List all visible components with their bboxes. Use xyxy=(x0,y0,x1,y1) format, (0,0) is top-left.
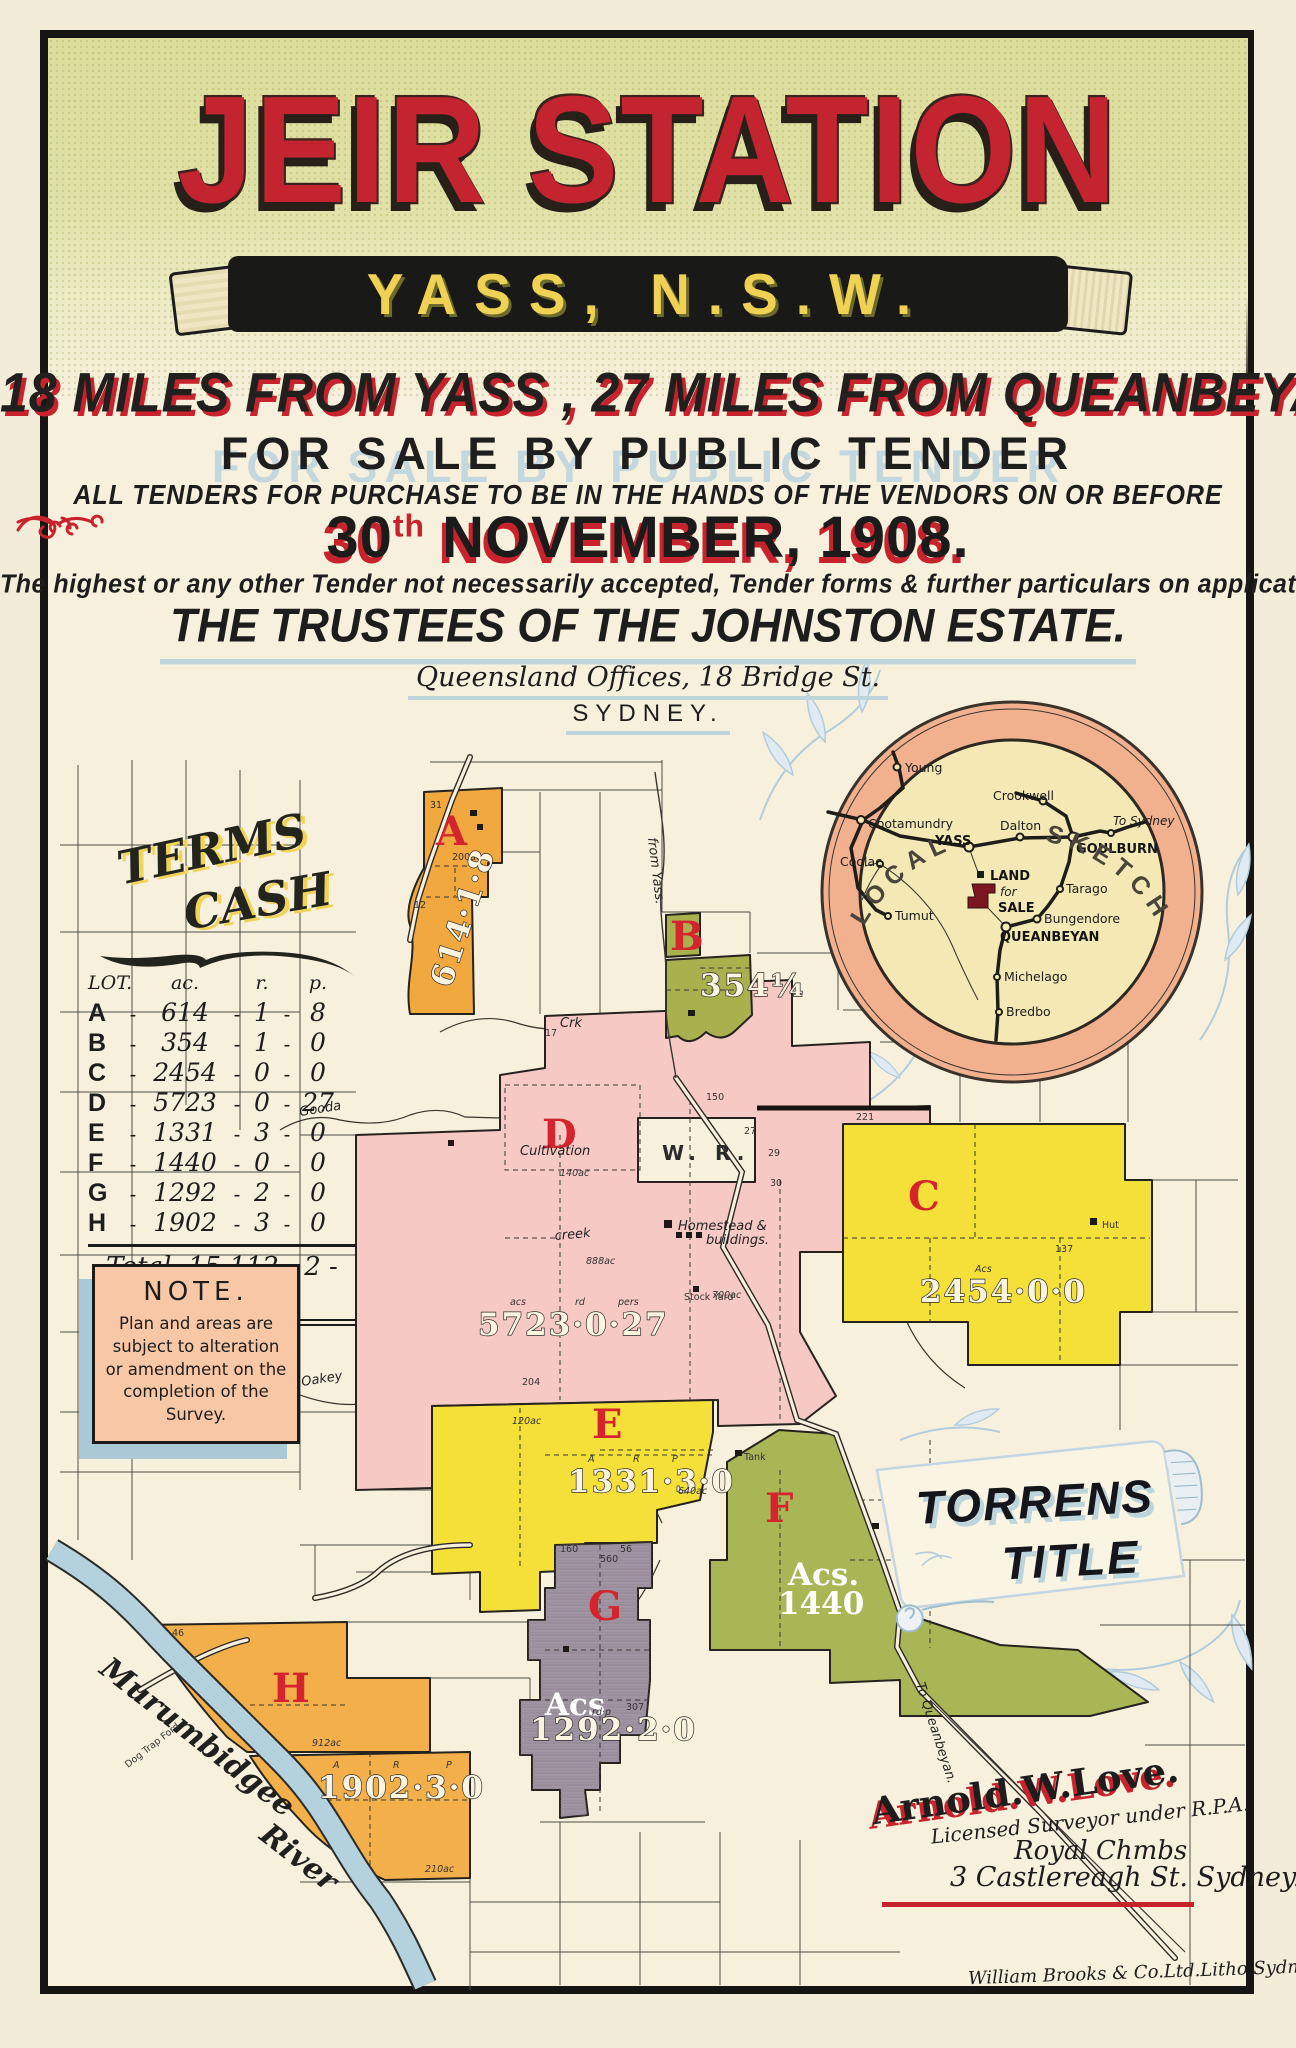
land-label-1: LAND xyxy=(990,869,1030,884)
parcel-label: 137 xyxy=(1055,1244,1073,1255)
lot-f-area: 1440 xyxy=(778,1586,864,1622)
date-day: 30 xyxy=(326,505,393,570)
lot-e-letter: E xyxy=(592,1401,623,1448)
sketch-town: Tumut xyxy=(894,908,934,923)
local-sketch-inset: Young Crookwell Cootamundry Dalton YASS … xyxy=(822,702,1202,1082)
sketch-town: Young xyxy=(904,760,942,775)
lot-h-area: 1902·3·0 xyxy=(318,1770,485,1806)
oakey-label: Oakey xyxy=(300,1369,344,1390)
lot-g-letter: G xyxy=(588,1583,622,1630)
location-banner: YASS, N.S.W. xyxy=(228,256,1068,332)
parcel-label: 888ac xyxy=(586,1256,616,1267)
creek-label: creek xyxy=(554,1226,592,1244)
location-banner-text: YASS, N.S.W. xyxy=(367,260,929,327)
note-box: NOTE. Plan and areas are subject to alte… xyxy=(92,1264,300,1444)
highest-tender-line: The highest or any other Tender not nece… xyxy=(0,570,1296,600)
homestead-label2: buildings. xyxy=(706,1233,769,1248)
lot-d-area: 5723·0·27 xyxy=(478,1307,669,1343)
lot-f-letter: F xyxy=(765,1485,793,1532)
parcel-label: 17 xyxy=(545,1028,557,1039)
surveyor-line-3: 3 Castlereagh St. Sydney. xyxy=(950,1862,1296,1893)
lot-c-letter: C xyxy=(908,1173,940,1220)
land-label-2: for xyxy=(1000,885,1018,899)
terms-row: H-1902-3-0 xyxy=(88,1208,356,1238)
parcel-label: 46 xyxy=(172,1628,184,1639)
parcel-label: 700ac xyxy=(712,1290,742,1301)
hut-label: Hut xyxy=(1102,1220,1119,1231)
address-line-2: SYDNEY. xyxy=(0,700,1296,735)
lot-a-letter: A xyxy=(435,808,468,855)
lot-h-letter: H xyxy=(272,1665,310,1712)
sketch-town: QUEANBEYAN xyxy=(1000,930,1099,945)
tank-label: Tank xyxy=(743,1452,766,1463)
parcel-label: 56 xyxy=(620,1544,632,1555)
cultivation-label: Cultivation xyxy=(520,1144,590,1159)
terms-row: F-1440-0-0 xyxy=(88,1148,356,1178)
homestead-label: Homestead & xyxy=(678,1219,767,1234)
parcel-label: 120ac xyxy=(512,1416,542,1427)
torrens-title-scroll: TORRENS TORRENS TITLE TITLE xyxy=(876,1439,1208,1633)
poster-title: JEIR STATION xyxy=(0,62,1296,237)
for-sale-line: FOR SALE BY PUBLIC TENDER xyxy=(0,428,1296,480)
address-line-1: Queensland Offices, 18 Bridge St. xyxy=(0,662,1296,700)
land-label-3: SALE xyxy=(998,901,1035,916)
poster-page: A 200ac 614·1·8 B 354¼ C Acs 2454·0·0 D … xyxy=(0,0,1296,2048)
terms-heading: TERMS CASH xyxy=(88,822,358,972)
sketch-town: Crookwell xyxy=(993,788,1054,803)
lot-c-shape xyxy=(843,1124,1152,1365)
parcel-label: 140ac xyxy=(560,1168,590,1179)
parcel-label: 31 xyxy=(430,800,442,811)
parcel-label: 640ac xyxy=(678,1486,708,1497)
sketch-town: Tarago xyxy=(1065,881,1108,896)
address-text-2: SYDNEY. xyxy=(566,700,729,735)
terms-row: B-354-1-0 xyxy=(88,1028,356,1058)
parcel-label: 30 xyxy=(770,1178,782,1189)
parcel-label: 210ac xyxy=(425,1864,455,1875)
lot-e-area: 1331·3·0 xyxy=(568,1464,735,1500)
sketch-town: Michelago xyxy=(1004,969,1067,984)
parcel-label: 912ac xyxy=(312,1738,342,1749)
sketch-town: Dalton xyxy=(1000,818,1041,833)
date-suffix: th xyxy=(393,508,425,544)
lot-c-area: 2454·0·0 xyxy=(920,1274,1087,1310)
lot-b-letter: B xyxy=(670,913,704,960)
parcel-label: 29 xyxy=(768,1148,780,1159)
terms-row: E-1331-3-0 xyxy=(88,1118,356,1148)
parcel-label: 307 xyxy=(626,1702,644,1713)
parcel-label: 12 xyxy=(414,900,426,911)
terms-row: C-2454-0-0 xyxy=(88,1058,356,1088)
terms-row: A-614-1-8 xyxy=(88,998,356,1028)
date-rest: NOVEMBER, 1908. xyxy=(425,505,970,570)
parcel-label: 160 xyxy=(560,1544,578,1555)
sketch-town: Bungendore xyxy=(1044,911,1120,926)
terms-row: G-1292-2-0 xyxy=(88,1178,356,1208)
lot-g-area: 1292·2·0 xyxy=(530,1712,697,1748)
trustees-text: THE TRUSTEES OF THE JOHNSTON ESTATE. xyxy=(160,600,1136,665)
parcel-label: 27 xyxy=(744,1126,756,1137)
address-text-1: Queensland Offices, 18 Bridge St. xyxy=(408,662,888,700)
surveyor-red-rule xyxy=(882,1902,1194,1907)
trustees-line: THE TRUSTEES OF THE JOHNSTON ESTATE. xyxy=(0,602,1296,662)
terms-swash-icon xyxy=(88,926,358,976)
sketch-town: Bredbo xyxy=(1006,1004,1051,1019)
parcel-label: 150 xyxy=(706,1092,724,1103)
parcel-label: 560 xyxy=(600,1554,618,1565)
lot-b-area: 354¼ xyxy=(700,968,805,1004)
distance-line: 18 MILES FROM YASS , 27 MILES FROM QUEAN… xyxy=(0,360,1296,425)
note-heading: NOTE. xyxy=(103,1277,289,1307)
flourish-right-icon xyxy=(14,504,74,544)
sketch-town: Cootamundry xyxy=(868,816,954,831)
parcel-label: 221 xyxy=(856,1112,874,1123)
crk-label: Crk xyxy=(560,1016,582,1031)
sketch-town: To Sydney xyxy=(1113,814,1175,828)
wr-label: W. R. xyxy=(662,1141,750,1165)
torrens-line-2: TITLE xyxy=(1001,1530,1141,1589)
land-marker xyxy=(977,871,984,878)
parcel-label: 204 xyxy=(522,1377,540,1388)
tender-date-line: 30th NOVEMBER, 1908. xyxy=(0,504,1296,571)
sketch-town: Coolac xyxy=(840,854,882,869)
terms-block: TERMS CASH LOT. ac. r. p. A-614-1-8 B-35… xyxy=(88,822,358,1326)
note-body: Plan and areas are subject to alteration… xyxy=(103,1313,289,1427)
terms-row: D-5723-0-27 xyxy=(88,1088,356,1118)
dog-trap-ford-label: Dog Trap Ford xyxy=(123,1721,182,1770)
